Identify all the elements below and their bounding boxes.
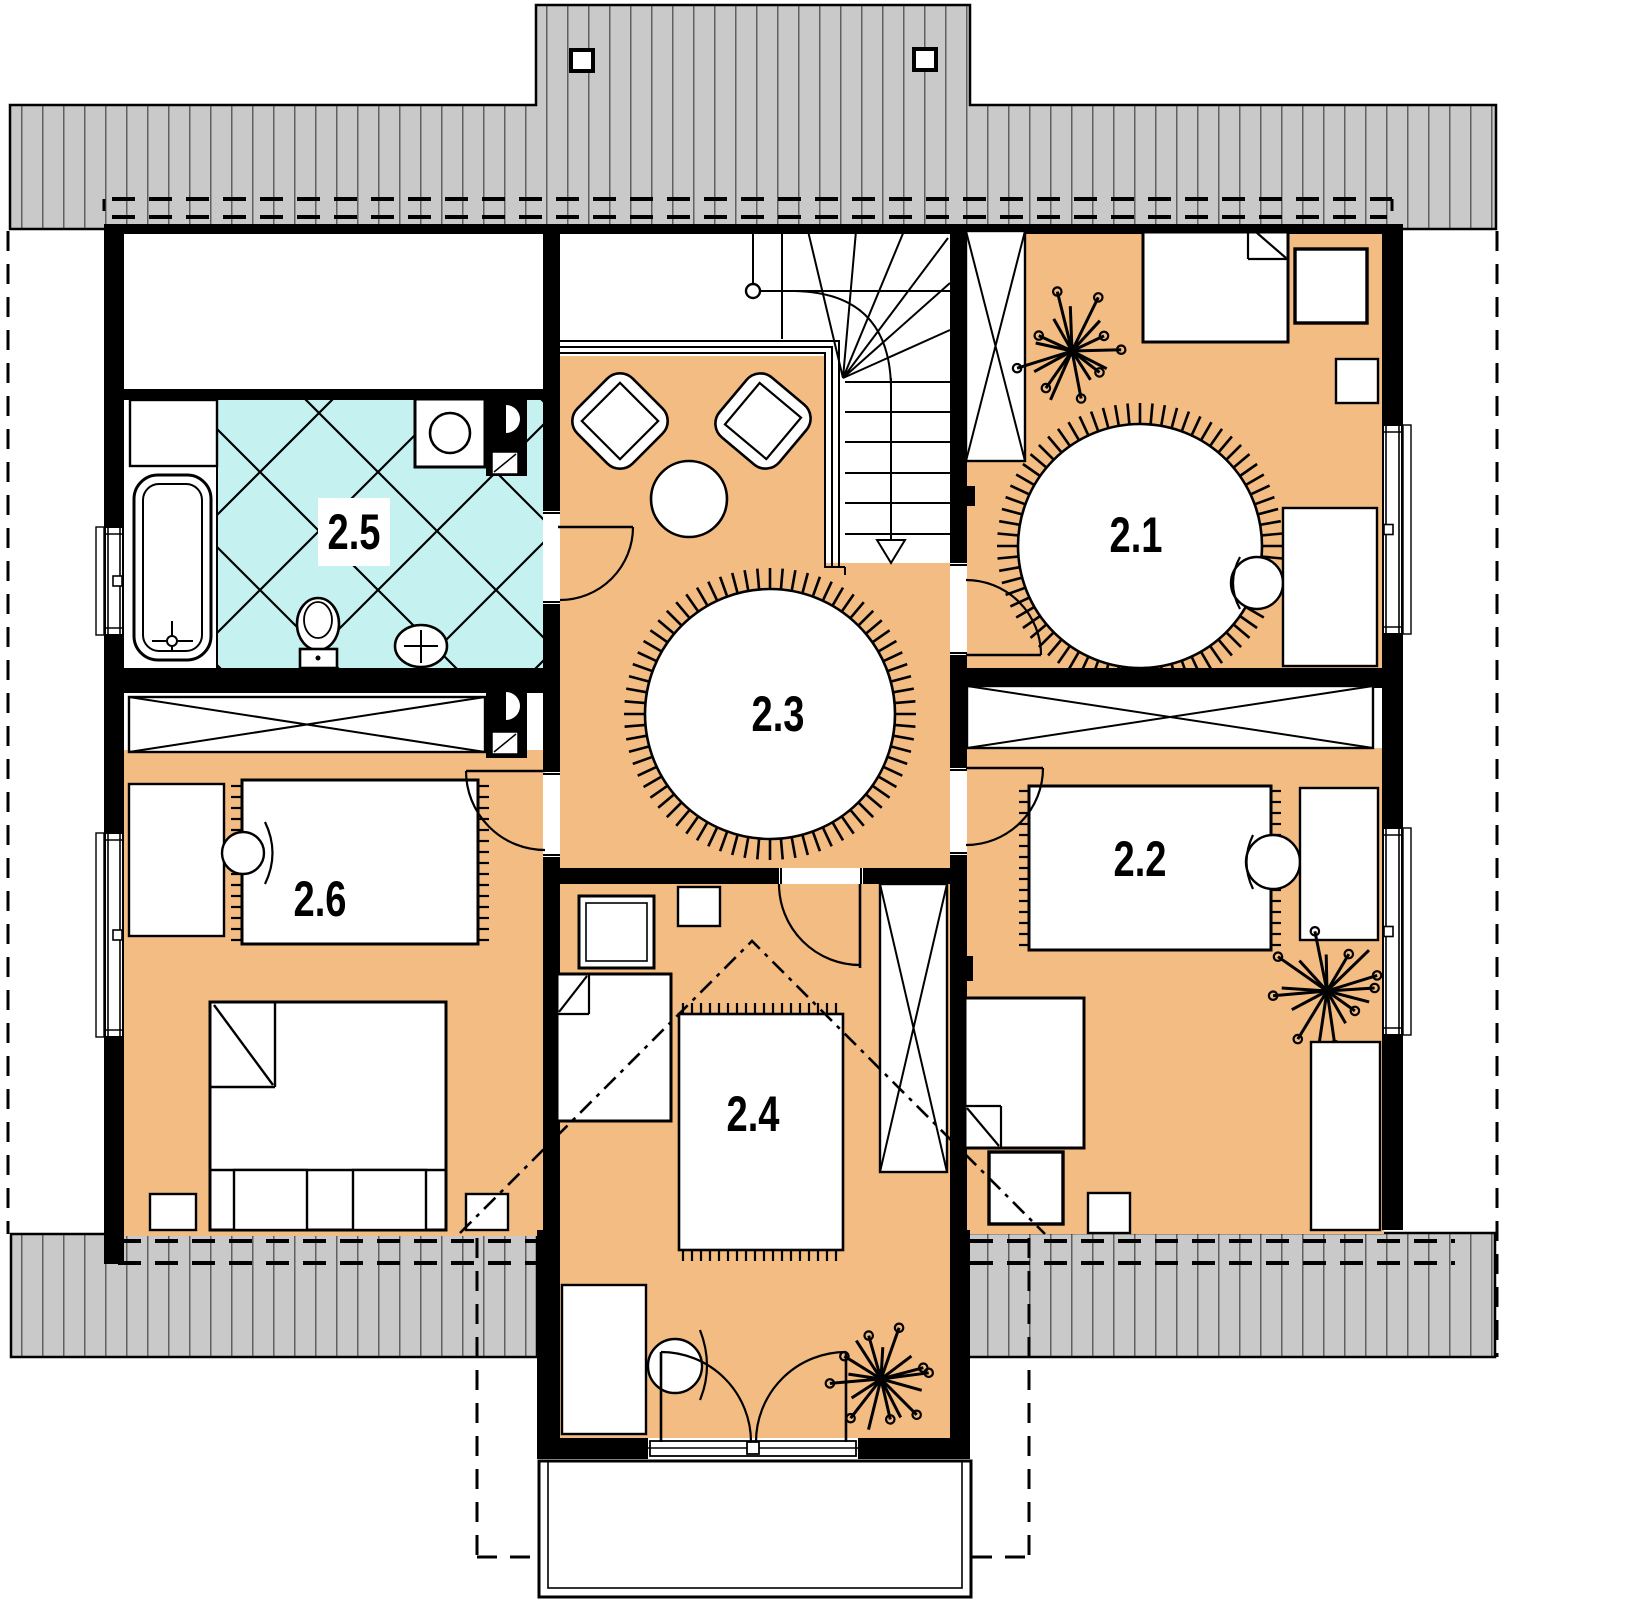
svg-text:2.4: 2.4 bbox=[727, 1086, 780, 1142]
svg-text:2.2: 2.2 bbox=[1114, 831, 1167, 887]
svg-text:2.6: 2.6 bbox=[294, 871, 347, 927]
svg-text:2.3: 2.3 bbox=[752, 686, 805, 742]
svg-text:2.1: 2.1 bbox=[1110, 507, 1163, 563]
svg-text:2.5: 2.5 bbox=[328, 504, 381, 560]
